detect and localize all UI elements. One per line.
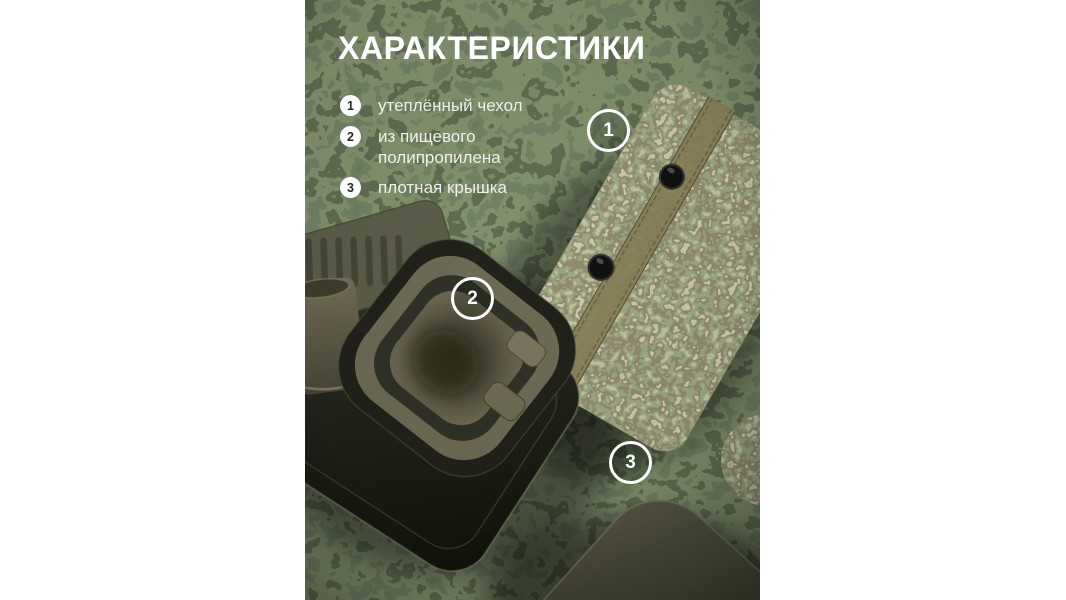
callout-number: 2 bbox=[467, 288, 478, 310]
feature-badge-1: 1 bbox=[340, 95, 361, 116]
feature-item-3: 3 плотная крышка bbox=[340, 177, 580, 198]
feature-label-1: утеплённый чехол bbox=[378, 95, 553, 116]
feature-badge-3: 3 bbox=[340, 177, 361, 198]
feature-label-3: плотная крышка bbox=[378, 177, 553, 198]
feature-item-1: 1 утеплённый чехол bbox=[340, 95, 580, 116]
feature-badge-number: 1 bbox=[347, 99, 354, 113]
feature-label-2: из пищевого полипропилена bbox=[378, 126, 553, 168]
callout-badge-1: 1 bbox=[587, 109, 630, 152]
callout-badge-2: 2 bbox=[451, 277, 494, 320]
callout-number: 1 bbox=[603, 120, 614, 142]
page: ХАРАКТЕРИСТИКИ 1 утеплённый чехол 2 из п… bbox=[0, 0, 1066, 600]
feature-badge-number: 3 bbox=[347, 181, 354, 195]
feature-badge-number: 2 bbox=[347, 130, 354, 144]
feature-badge-2: 2 bbox=[340, 126, 361, 147]
page-title: ХАРАКТЕРИСТИКИ bbox=[338, 30, 645, 67]
product-photo bbox=[305, 0, 760, 600]
feature-item-2: 2 из пищевого полипропилена bbox=[340, 126, 580, 168]
callout-number: 3 bbox=[625, 452, 636, 474]
callout-badge-3: 3 bbox=[609, 441, 652, 484]
vignette bbox=[305, 0, 760, 600]
product-image-card: ХАРАКТЕРИСТИКИ 1 утеплённый чехол 2 из п… bbox=[305, 0, 760, 600]
